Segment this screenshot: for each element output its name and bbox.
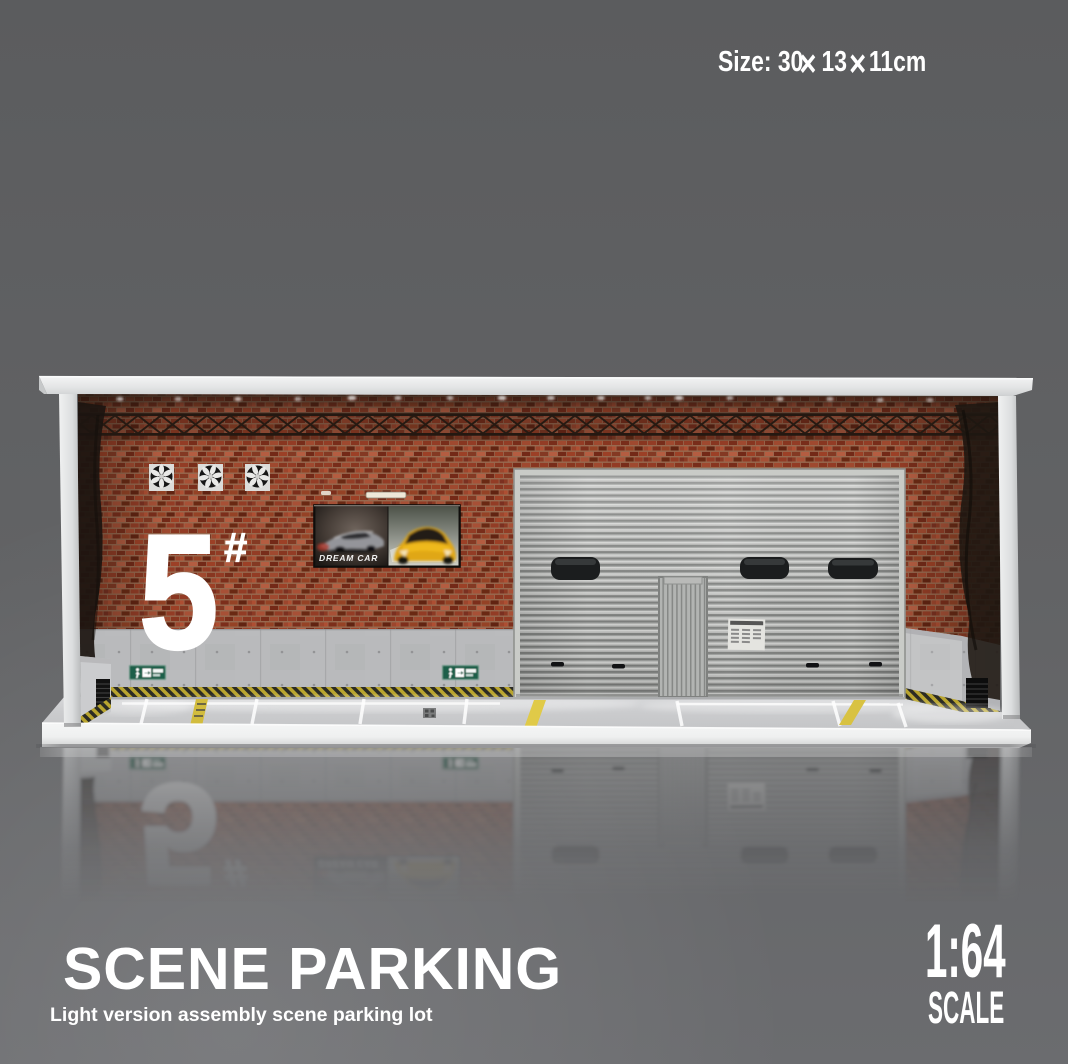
svg-text:×: ×: [849, 44, 866, 85]
svg-text:Size: 30: Size: 30: [718, 44, 803, 77]
svg-text:Light version assembly scene p: Light version assembly scene parking lot: [50, 1004, 433, 1026]
svg-text:SCALE: SCALE: [928, 983, 1004, 1034]
svg-text:DREAM CAR: DREAM CAR: [319, 553, 378, 563]
svg-text:1:64: 1:64: [925, 908, 1006, 993]
svg-text:×: ×: [799, 44, 816, 85]
svg-text:#: #: [224, 524, 247, 571]
svg-text:5: 5: [139, 501, 218, 683]
svg-text:13: 13: [821, 44, 846, 77]
svg-text:SCENE PARKING: SCENE PARKING: [63, 936, 562, 1002]
svg-text:11cm: 11cm: [869, 44, 926, 77]
